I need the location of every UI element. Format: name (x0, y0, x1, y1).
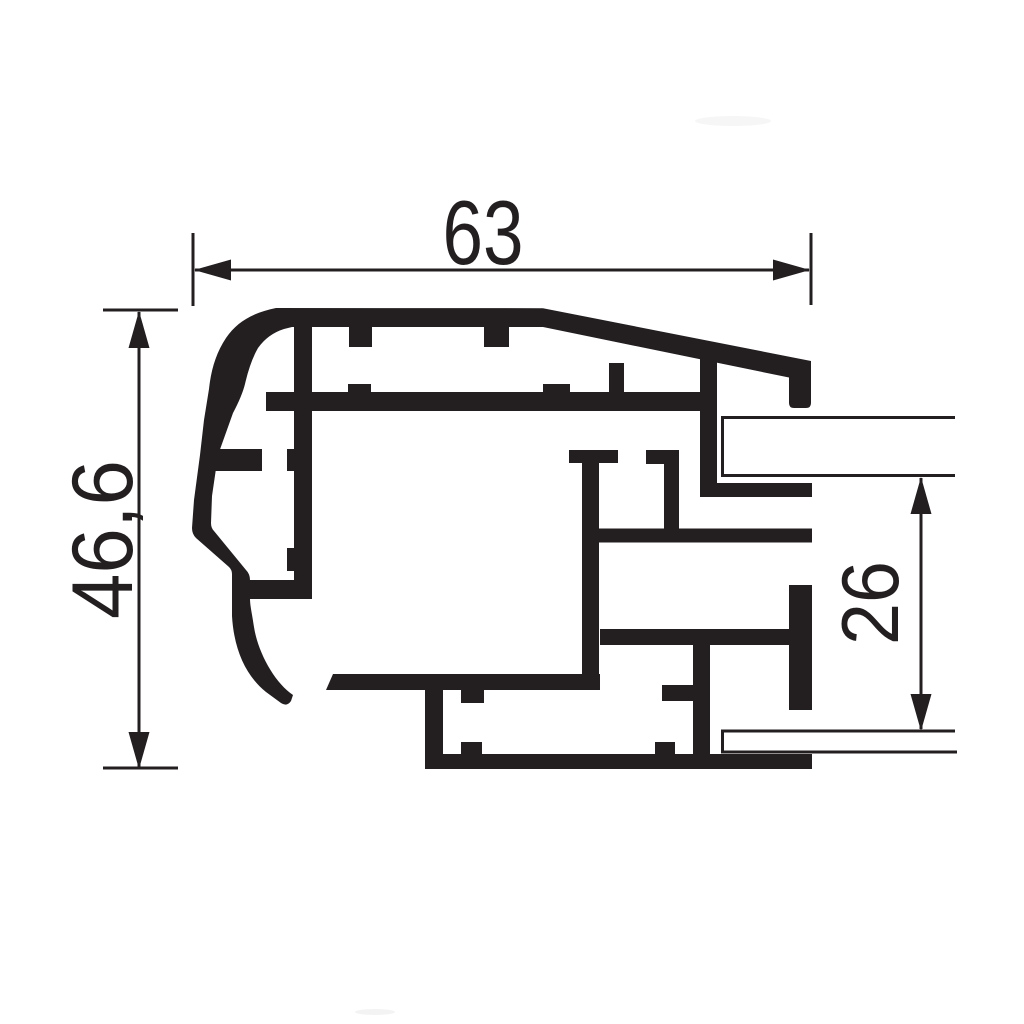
svg-text:26: 26 (826, 561, 916, 645)
svg-text:46,6: 46,6 (55, 460, 151, 619)
svg-text:63: 63 (443, 183, 524, 284)
